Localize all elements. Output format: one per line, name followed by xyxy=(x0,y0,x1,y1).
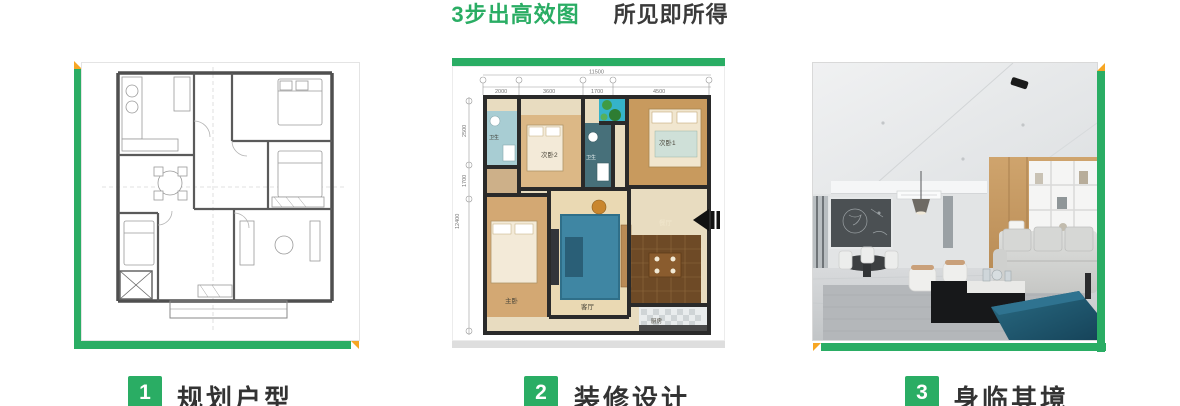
section-title-tagline: 所见即所得 xyxy=(614,2,729,27)
step-3-label: 身临其境 xyxy=(953,379,1069,406)
dim-label: 2500 xyxy=(462,125,468,137)
orange-corner-triangle xyxy=(1097,63,1105,71)
step-1-label: 规划户型 xyxy=(177,379,293,406)
step-2-label: 装修设计 xyxy=(574,379,690,406)
room-label-master: 主卧 xyxy=(505,296,519,305)
dim-label: 3600 xyxy=(543,89,555,95)
colored-floorplan-card: 2000 3600 1700 4500 11500 2500 1700 1240… xyxy=(452,66,725,341)
orange-corner-triangle xyxy=(813,343,821,351)
cad-floorplan-drawing xyxy=(82,63,359,340)
room-label-bath: 卫生 xyxy=(586,154,596,161)
render-photo-card xyxy=(812,62,1098,341)
green-accent-bar-bottom xyxy=(821,343,1106,351)
room-label-bedroom1: 次卧1 xyxy=(659,138,676,147)
dim-total-label: 12400 xyxy=(455,214,461,229)
step-3-badge: 3 xyxy=(905,376,939,406)
dim-label: 2000 xyxy=(495,89,507,95)
colored-floorplan-drawing: 2000 3600 1700 4500 11500 2500 1700 1240… xyxy=(453,67,724,340)
step2-panel-colored-floorplan: 2000 3600 1700 4500 11500 2500 1700 1240… xyxy=(452,58,725,348)
step-1-badge: 1 xyxy=(128,376,162,406)
green-accent-bar-top xyxy=(452,58,725,66)
step-2-badge: 2 xyxy=(524,376,558,406)
step3-panel-render-photo xyxy=(812,62,1106,354)
feature-section: 3步出高效图所见即所得 xyxy=(0,0,1180,406)
section-title: 3步出高效图所见即所得 xyxy=(0,2,1180,28)
room-label-living: 客厅 xyxy=(581,302,595,311)
interior-render-image xyxy=(813,63,1097,340)
green-accent-bar-right xyxy=(1097,71,1105,352)
room-label-kitchen: 厨房 xyxy=(651,317,663,325)
dim-label: 1700 xyxy=(591,89,603,95)
section-title-highlight: 3步出高效图 xyxy=(451,2,579,27)
decanter-set xyxy=(983,269,1011,281)
step1-panel-cad-floorplan xyxy=(74,60,362,352)
green-accent-bar-bottom xyxy=(74,341,351,349)
dim-total-label: 11500 xyxy=(589,70,604,76)
room-label-dining: 餐厅 xyxy=(659,218,673,227)
dim-label: 1700 xyxy=(462,175,468,187)
cad-floorplan-card xyxy=(81,62,360,341)
room-label-bath: 卫生 xyxy=(489,134,499,141)
orange-corner-triangle xyxy=(351,341,359,349)
gray-shadow-strip xyxy=(452,341,725,348)
room-label-bedroom2: 次卧2 xyxy=(541,150,558,159)
dim-label: 4500 xyxy=(653,89,665,95)
